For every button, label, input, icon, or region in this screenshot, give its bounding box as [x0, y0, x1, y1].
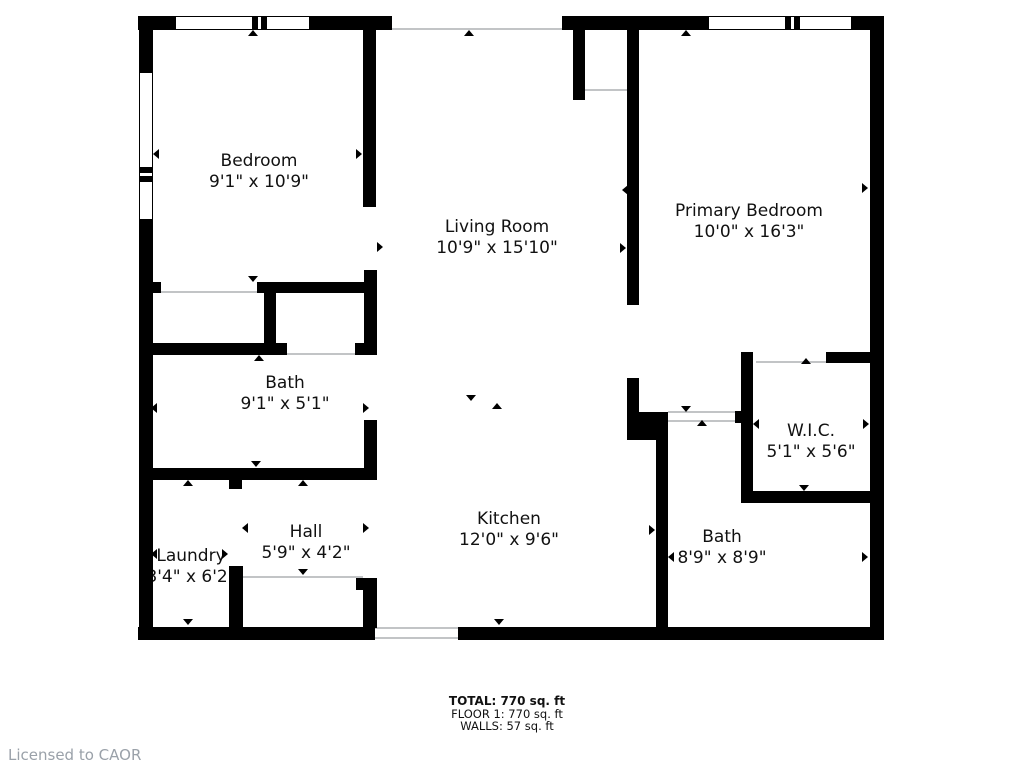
door-opening-marker-right — [363, 403, 369, 413]
door-opening-marker-left — [668, 552, 674, 562]
door-opening-marker-up — [801, 358, 811, 364]
wall-segment — [355, 343, 365, 355]
door-opening-marker-right — [620, 243, 626, 253]
wall-segment — [152, 343, 287, 355]
door-opening-marker-down — [183, 619, 193, 625]
opening-boundary-line — [243, 576, 363, 578]
door-opening-marker-left — [153, 149, 159, 159]
room-dimensions: 12'0" x 9'6" — [459, 530, 559, 551]
wall-segment — [627, 412, 668, 440]
wall-segment — [363, 30, 376, 207]
wall-segment — [870, 16, 884, 640]
door-opening-marker-up — [681, 30, 691, 36]
room-dimensions: 3'4" x 6'2" — [146, 567, 235, 588]
door-opening-marker-down — [251, 461, 261, 467]
window-mullion — [785, 16, 791, 30]
door-opening-marker-right — [649, 525, 655, 535]
floorplan: Bedroom9'1" x 10'9"Living Room10'9" x 15… — [0, 0, 1024, 768]
door-opening-marker-down — [494, 619, 504, 625]
window-mullion — [139, 167, 153, 173]
door-opening-marker-left — [622, 185, 628, 195]
door-opening-marker-down — [298, 569, 308, 575]
room-dimensions: 10'0" x 16'3" — [675, 222, 823, 243]
room-name: Living Room — [436, 217, 558, 238]
wall-segment — [826, 352, 870, 363]
wall-segment — [363, 590, 377, 628]
window — [175, 16, 310, 30]
area-summary: TOTAL: 770 sq. ft FLOOR 1: 770 sq. ft WA… — [449, 695, 565, 732]
room-name: Bath — [677, 527, 766, 548]
door-opening-marker-up — [183, 480, 193, 486]
door-opening-marker-up — [254, 355, 264, 361]
room-label-hall: Hall5'9" x 4'2" — [261, 522, 350, 564]
wall-segment — [741, 352, 753, 503]
room-label-kitchen: Kitchen12'0" x 9'6" — [459, 509, 559, 551]
room-label-primary-bedroom: Primary Bedroom10'0" x 16'3" — [675, 201, 823, 243]
opening-boundary-line — [287, 353, 355, 355]
opening-boundary-line — [375, 627, 458, 629]
opening-boundary-line — [585, 89, 627, 91]
wall-segment — [139, 16, 153, 72]
room-name: W.I.C. — [766, 421, 855, 442]
room-dimensions: 8'9" x 8'9" — [677, 548, 766, 569]
window-mullion — [794, 16, 800, 30]
room-label-living-room: Living Room10'9" x 15'10" — [436, 217, 558, 259]
room-dimensions: 5'1" x 5'6" — [766, 442, 855, 463]
wall-segment — [364, 420, 377, 480]
room-name: Hall — [261, 522, 350, 543]
wall-segment — [741, 491, 870, 503]
room-dimensions: 9'1" x 5'1" — [240, 394, 329, 415]
wall-segment — [229, 566, 243, 628]
room-name: Bath — [240, 373, 329, 394]
licensed-to-text: Licensed to CAOR — [8, 746, 141, 764]
window — [708, 16, 852, 30]
door-opening-marker-up — [492, 403, 502, 409]
wall-segment — [139, 220, 153, 640]
wall-segment — [458, 627, 884, 640]
room-label-bath: Bath9'1" x 5'1" — [240, 373, 329, 415]
room-name: Primary Bedroom — [675, 201, 823, 222]
window-mullion — [252, 16, 258, 30]
wall-segment — [573, 16, 585, 100]
room-label-bedroom: Bedroom9'1" x 10'9" — [209, 151, 309, 193]
room-name: Bedroom — [209, 151, 309, 172]
wall-segment — [627, 16, 639, 305]
door-opening-marker-right — [862, 552, 868, 562]
opening-boundary-line — [392, 28, 562, 30]
room-dimensions: 5'9" x 4'2" — [261, 543, 350, 564]
door-opening-marker-right — [377, 242, 383, 252]
wall-segment — [356, 578, 377, 590]
wall-segment — [310, 16, 392, 30]
wall-segment — [139, 468, 377, 480]
door-opening-marker-up — [298, 480, 308, 486]
opening-boundary-line — [668, 411, 741, 413]
opening-boundary-line — [375, 637, 458, 639]
wall-segment — [627, 378, 639, 412]
door-opening-marker-down — [466, 395, 476, 401]
door-opening-marker-down — [799, 485, 809, 491]
opening-boundary-line — [756, 361, 826, 363]
door-opening-marker-left — [753, 419, 759, 429]
wall-segment — [735, 411, 742, 423]
room-label-wic: W.I.C.5'1" x 5'6" — [766, 421, 855, 463]
door-opening-marker-right — [363, 523, 369, 533]
door-opening-marker-right — [222, 549, 228, 559]
opening-boundary-line — [161, 291, 257, 293]
door-opening-marker-up — [697, 420, 707, 426]
door-opening-marker-up — [464, 30, 474, 36]
window-mullion — [139, 176, 153, 182]
door-opening-marker-right — [862, 183, 868, 193]
door-opening-marker-left — [151, 403, 157, 413]
door-opening-marker-right — [863, 419, 869, 429]
door-opening-marker-left — [242, 523, 248, 533]
door-opening-marker-left — [151, 549, 157, 559]
door-opening-marker-down — [681, 406, 691, 412]
window-mullion — [261, 16, 267, 30]
window — [139, 72, 153, 220]
wall-segment — [656, 440, 668, 628]
room-name: Kitchen — [459, 509, 559, 530]
walls-area-text: WALLS: 57 sq. ft — [449, 720, 565, 732]
door-opening-marker-down — [248, 276, 258, 282]
wall-segment — [153, 282, 161, 293]
room-label-bath-2: Bath8'9" x 8'9" — [677, 527, 766, 569]
room-dimensions: 10'9" x 15'10" — [436, 238, 558, 259]
wall-segment — [264, 282, 276, 350]
door-opening-marker-right — [356, 149, 362, 159]
wall-segment — [138, 627, 375, 640]
room-dimensions: 9'1" x 10'9" — [209, 172, 309, 193]
floor-plan-page: Bedroom9'1" x 10'9"Living Room10'9" x 15… — [0, 0, 1024, 768]
door-opening-marker-up — [248, 30, 258, 36]
wall-segment — [229, 480, 242, 489]
